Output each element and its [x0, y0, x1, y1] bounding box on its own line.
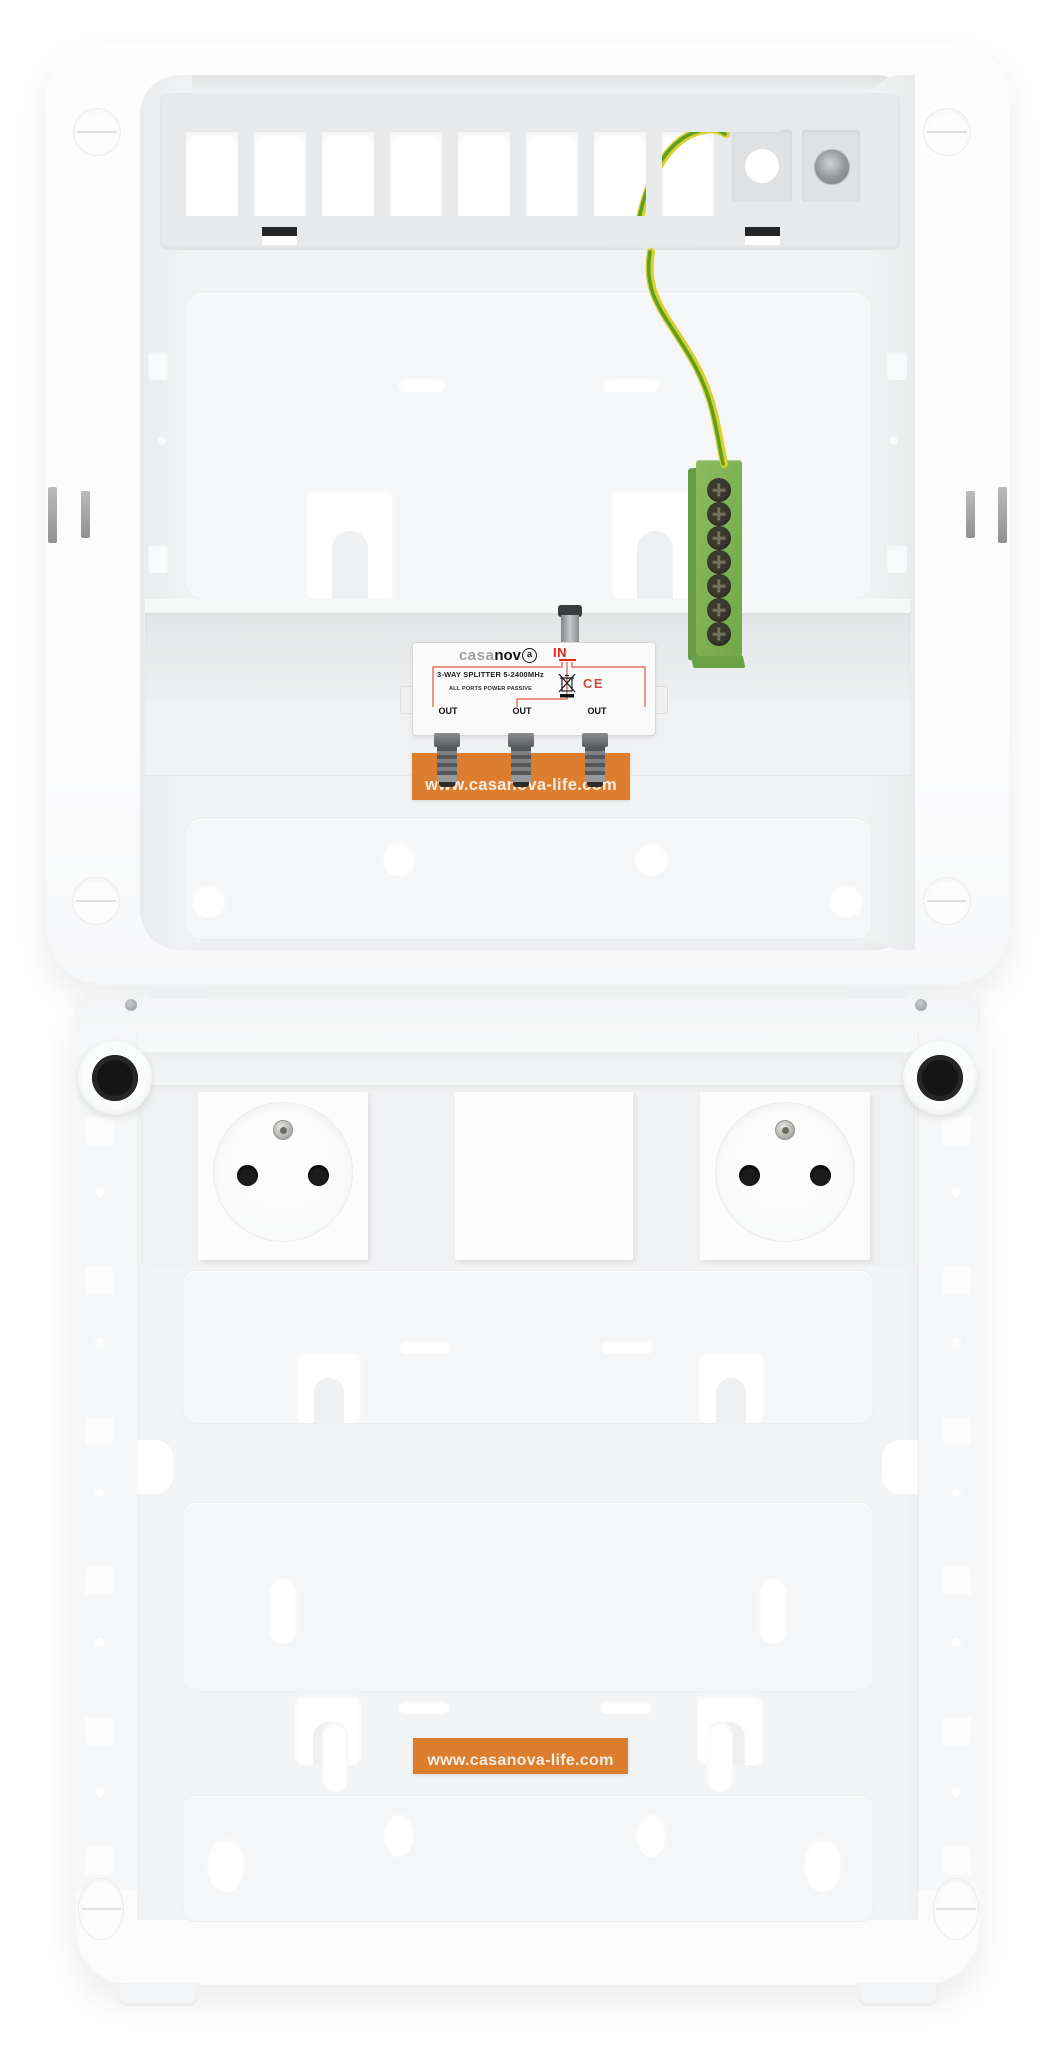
socket-hole-right	[810, 1165, 831, 1186]
base-screw-left	[78, 1878, 124, 1940]
rail-hole-small	[95, 1488, 104, 1497]
rail-hole	[84, 1415, 114, 1445]
tray-oval-hole	[636, 1813, 666, 1857]
splitter-brand-logo: casanova	[423, 646, 573, 664]
splitter-in-connector	[561, 615, 579, 644]
keyhole-tab	[314, 1378, 344, 1423]
earth-pin-core	[782, 1127, 789, 1134]
brand-casa: casa	[459, 647, 494, 664]
weee-bin-icon	[557, 671, 577, 699]
ce-mark: CE	[583, 676, 604, 691]
oval-slot	[759, 1576, 787, 1644]
socket-hole-right	[308, 1165, 329, 1186]
power-socket-right	[700, 1092, 870, 1260]
rail-hole-small	[952, 1788, 961, 1797]
screw-slot	[936, 1908, 977, 1910]
latch-slot	[262, 227, 297, 236]
out-connector-1-cap	[439, 782, 455, 787]
slot-separator	[646, 132, 662, 216]
rail-hole	[942, 1265, 972, 1295]
rail-hole-small	[95, 1338, 104, 1347]
out-connector-2-tip	[511, 775, 531, 782]
socket-earth-pin	[273, 1120, 293, 1140]
cable-entry-hole-right	[917, 1055, 963, 1101]
rail-hole	[942, 1415, 972, 1445]
oval-slot	[269, 1576, 297, 1644]
rail-hole-small	[952, 1338, 961, 1347]
earth-pin-core	[280, 1127, 287, 1134]
socket-earth-pin	[775, 1120, 795, 1140]
latch-slot-under	[262, 236, 297, 245]
rail-frame-lip	[608, 216, 700, 247]
splitter-out-label-1: OUT	[429, 706, 467, 716]
rail-hole-small	[95, 1188, 104, 1197]
out-connector-3-tip	[585, 775, 605, 782]
enclosure-foot-right	[858, 1983, 938, 2006]
mini-screw-left	[125, 999, 137, 1011]
out-connector-1-tip	[437, 775, 457, 782]
rail-hole-small	[952, 1188, 961, 1197]
rail-hole	[942, 1115, 972, 1145]
out-connector-2-cap	[513, 782, 529, 787]
wall-notch-left	[137, 1440, 173, 1494]
cable-entry-hole-left	[92, 1055, 138, 1101]
rail-hole-small	[95, 1788, 104, 1797]
splitter-spec-text: 3-WAY SPLITTER 5-2400MHz	[418, 670, 563, 679]
mounting-slot	[398, 1700, 450, 1714]
brand-a-circle: a	[522, 648, 537, 663]
rail-hole	[942, 1845, 972, 1875]
rail-hole-small	[952, 1488, 961, 1497]
rail-hole	[942, 1565, 972, 1595]
blank-center-module	[455, 1092, 633, 1260]
rail-hole	[942, 1715, 972, 1745]
rail-hole	[84, 1715, 114, 1745]
base-screw-right	[933, 1878, 979, 1940]
mounting-slot	[399, 1339, 451, 1354]
back-mounting-panel-a	[182, 1270, 874, 1424]
splitter-passive-text: ALL PORTS POWER PASSIVE	[448, 686, 533, 692]
website-label-bottom: www.casanova-life.com	[413, 1738, 628, 1774]
oval-slot	[707, 1722, 733, 1792]
splitter-out-label-3: OUT	[578, 706, 616, 716]
tray-oval-hole	[384, 1813, 414, 1857]
mounting-slot	[601, 1339, 653, 1354]
socket-hole-left	[237, 1165, 258, 1186]
power-socket-left	[198, 1092, 368, 1260]
out-connector-3-cap	[587, 782, 603, 787]
keyhole-cutout	[698, 1351, 764, 1423]
splitter-out-label-2: OUT	[503, 706, 541, 716]
latch-slot-under	[745, 236, 780, 245]
website-text-bottom: www.casanova-life.com	[427, 1752, 613, 1774]
latch-slot	[745, 227, 780, 236]
rail-hole	[84, 1265, 114, 1295]
tray-oval-hole	[804, 1838, 842, 1892]
cable-tray-panel-bottom-unit	[182, 1795, 874, 1922]
keyhole-tab	[716, 1378, 746, 1423]
wall-notch-right	[882, 1440, 918, 1494]
rail-hole	[84, 1115, 114, 1145]
back-mounting-panel-b	[182, 1502, 874, 1692]
out-connector-1	[437, 747, 457, 775]
rail-frame-cover	[655, 93, 780, 132]
splitter-device: casanova IN 3-WAY SPLITTER 5-2400MHz ALL…	[412, 642, 656, 736]
out-connector-2-nut	[508, 733, 534, 747]
rail-hole-small	[952, 1638, 961, 1647]
socket-hole-left	[739, 1165, 760, 1186]
mini-screw-right	[915, 999, 927, 1011]
tray-oval-hole	[207, 1838, 245, 1892]
perforated-rail-left	[75, 1030, 138, 1890]
earth-wire	[0, 0, 1055, 1000]
keyhole-cutout	[296, 1351, 362, 1423]
product-photo-multimedia-enclosure: casanova IN 3-WAY SPLITTER 5-2400MHz ALL…	[0, 0, 1055, 2045]
out-connector-2	[511, 747, 531, 775]
rail-hole	[84, 1845, 114, 1875]
out-connector-3-nut	[582, 733, 608, 747]
mounting-slot	[600, 1700, 652, 1714]
oval-slot	[322, 1722, 348, 1792]
brand-nov: nov	[494, 647, 521, 664]
splitter-in-label: IN	[553, 645, 567, 660]
out-connector-3	[585, 747, 605, 775]
perforated-rail-right	[918, 1030, 981, 1890]
screw-slot	[81, 1908, 122, 1910]
rail-hole-small	[95, 1638, 104, 1647]
rail-hole	[84, 1565, 114, 1595]
enclosure-foot-left	[118, 1983, 198, 2006]
out-connector-1-nut	[434, 733, 460, 747]
